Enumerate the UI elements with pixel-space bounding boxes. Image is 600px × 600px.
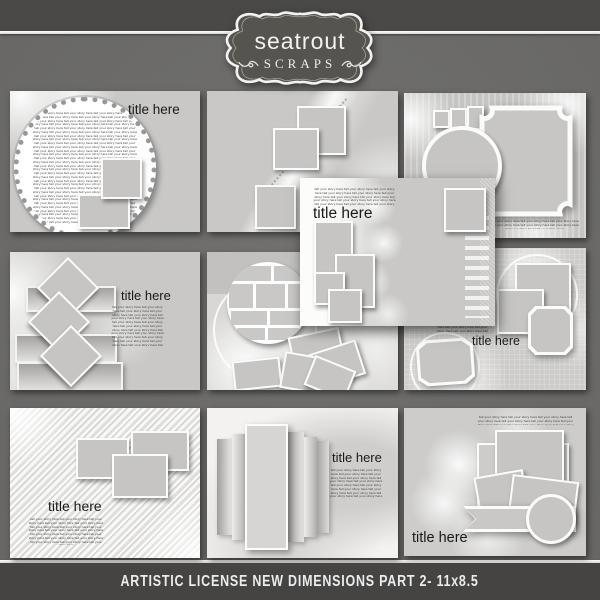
octagon-placeholder [415,337,475,387]
title-label: title here [332,450,382,465]
flourish-left-icon [238,58,260,70]
tab-placeholder [433,110,450,128]
photo-placeholder [101,158,142,199]
brand-subtitle: SCRAPS [264,56,336,72]
template-middle-left: title here tell your story here tell you… [10,252,200,390]
photo-placeholder [444,188,486,232]
product-preview-canvas: seatrout SCRAPS tell your story here tel… [0,0,600,600]
journaling-text: tell your story here tell your story her… [26,518,106,545]
template-bottom-left: title here tell your story here tell you… [10,408,200,558]
title-label: title here [128,102,180,117]
accordion-fold-placeholder [217,426,329,548]
flourish-right-icon [340,58,362,70]
title-label: title here [472,334,520,348]
photo-placeholder [232,357,283,390]
title-label: title here [412,530,468,546]
journaling-text: tell your story here tell your story her… [475,416,576,425]
photo-placeholder [112,454,168,498]
journaling-text: tell your story here tell your story her… [328,469,384,505]
photo-placeholder [78,194,130,229]
template-top-left: tell your story here tell your story her… [10,91,200,232]
journaling-text: tell your story here tell your story her… [490,220,580,229]
product-title: ARTISTIC LICENSE NEW DIMENSIONS PART 2- … [121,573,479,591]
template-bottom-middle: title here tell your story here tell you… [207,408,398,558]
title-label: title here [48,498,102,514]
brand-name: seatrout [254,28,345,55]
circle-placeholder [526,494,576,544]
brand-badge: seatrout SCRAPS [221,5,379,91]
footer-bar: ARTISTIC LICENSE NEW DIMENSIONS PART 2- … [0,563,600,600]
photo-placeholder [255,185,296,229]
template-bottom-right: tell your story here tell your story her… [404,408,586,556]
journaling-text: tell your story here tell your story her… [110,306,165,346]
title-label: title here [121,288,171,303]
circle-collage-placeholder [227,262,309,344]
photo-placeholder [273,128,319,170]
octagon-placeholder [528,306,573,355]
photo-placeholder [328,289,362,323]
template-overlay-center: tell your story here tell your story her… [300,178,495,326]
